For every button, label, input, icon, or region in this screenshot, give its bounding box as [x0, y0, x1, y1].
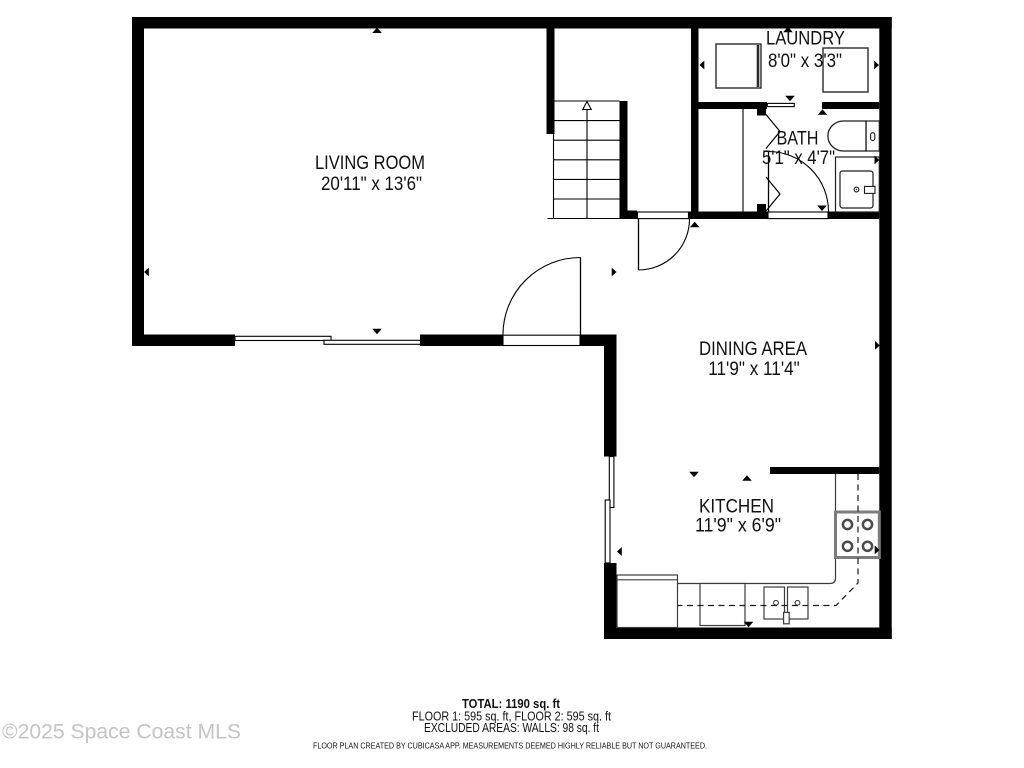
svg-text:©2025 Space Coast MLS: ©2025 Space Coast MLS — [2, 721, 241, 744]
svg-text:LIVING ROOM: LIVING ROOM — [315, 152, 425, 174]
svg-text:11'9" x 6'9": 11'9" x 6'9" — [695, 515, 781, 537]
svg-text:DINING AREA: DINING AREA — [699, 338, 807, 360]
svg-text:5'1" x 4'7": 5'1" x 4'7" — [762, 147, 835, 169]
svg-text:EXCLUDED AREAS: WALLS: 98 sq.: EXCLUDED AREAS: WALLS: 98 sq. ft — [424, 721, 599, 735]
svg-text:LAUNDRY: LAUNDRY — [766, 28, 845, 50]
svg-text:8'0" x 3'3": 8'0" x 3'3" — [768, 50, 842, 72]
svg-text:11'9" x 11'4": 11'9" x 11'4" — [708, 358, 800, 380]
svg-text:FLOOR PLAN CREATED BY CUBICASA: FLOOR PLAN CREATED BY CUBICASA APP. MEAS… — [313, 742, 707, 751]
svg-text:20'11" x 13'6": 20'11" x 13'6" — [321, 173, 422, 195]
